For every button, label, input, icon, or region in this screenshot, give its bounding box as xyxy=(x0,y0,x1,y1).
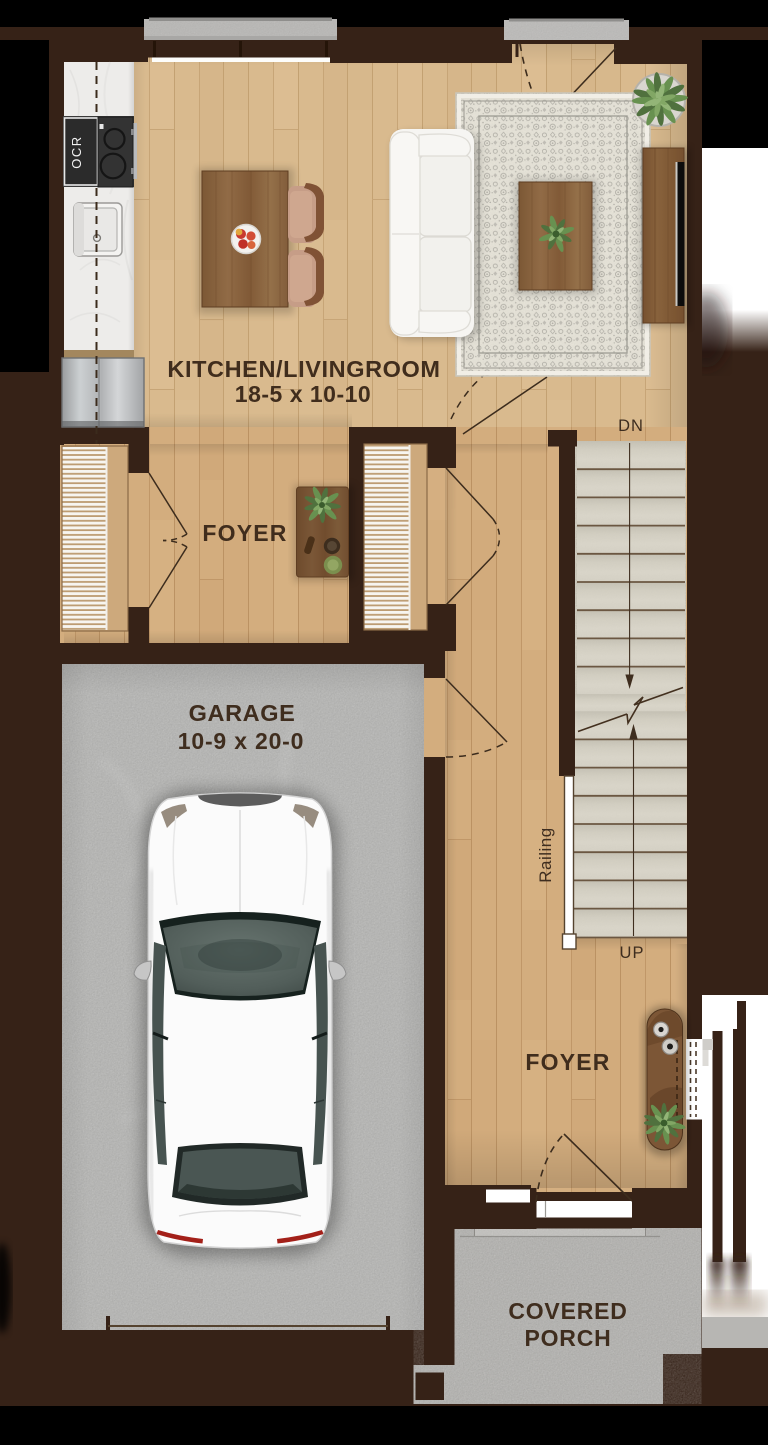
svg-text:OCR: OCR xyxy=(69,135,84,168)
svg-text:PORCH: PORCH xyxy=(524,1325,611,1351)
svg-text:COVERED: COVERED xyxy=(508,1298,627,1324)
svg-text:FOYER: FOYER xyxy=(525,1049,610,1075)
svg-text:DN: DN xyxy=(618,417,644,435)
svg-text:10-9 x 20-0: 10-9 x 20-0 xyxy=(178,728,304,754)
svg-text:Railing: Railing xyxy=(536,827,555,882)
svg-text:KITCHEN/LIVINGROOM: KITCHEN/LIVINGROOM xyxy=(167,356,440,382)
svg-text:18-5 x 10-10: 18-5 x 10-10 xyxy=(235,381,371,407)
svg-text:FOYER: FOYER xyxy=(202,520,287,546)
svg-text:UP: UP xyxy=(620,944,645,962)
svg-text:GARAGE: GARAGE xyxy=(189,700,296,726)
